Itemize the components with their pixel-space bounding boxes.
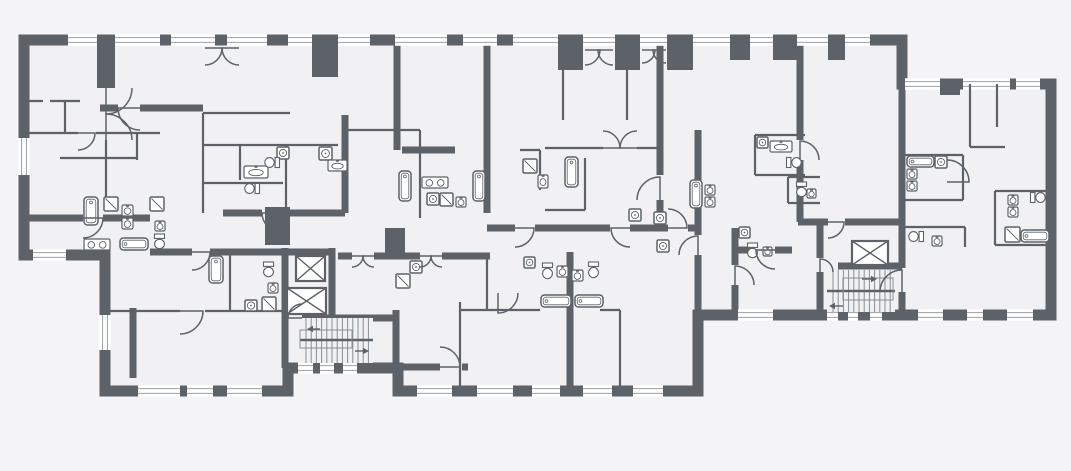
pier <box>828 45 845 60</box>
shower-icon <box>150 197 164 211</box>
tub-icon <box>575 295 603 307</box>
window <box>583 34 615 46</box>
sinkR-icon <box>155 221 165 231</box>
window <box>1007 309 1033 321</box>
elevator-shaft <box>296 256 325 281</box>
washer-icon <box>245 300 257 311</box>
sinkR-icon <box>1008 195 1018 205</box>
window <box>797 34 828 46</box>
shower-icon <box>440 193 453 206</box>
sink1-icon <box>244 166 268 178</box>
pier <box>667 45 693 70</box>
sinkR-icon <box>122 218 133 229</box>
window <box>583 385 612 397</box>
sink1-icon <box>538 175 548 188</box>
window <box>343 362 357 374</box>
window <box>513 34 558 46</box>
sink1-icon <box>328 160 347 171</box>
window <box>918 309 943 321</box>
staircase <box>300 318 373 363</box>
sinkR-icon <box>1008 207 1018 217</box>
window <box>750 34 773 46</box>
window <box>967 309 983 321</box>
tub-icon <box>541 295 571 307</box>
window <box>18 138 30 175</box>
sink1-icon <box>770 141 792 152</box>
toilet-icon <box>909 232 924 242</box>
window <box>463 34 497 46</box>
window <box>532 385 560 397</box>
pier <box>97 45 115 88</box>
sinkR-icon <box>268 283 278 293</box>
window <box>68 34 97 46</box>
shower-icon <box>396 274 410 288</box>
pier <box>773 45 797 60</box>
toilet-icon <box>543 263 553 279</box>
window <box>417 385 452 397</box>
building-footprint <box>24 40 1051 391</box>
toilet-icon <box>589 262 599 278</box>
window <box>288 34 312 46</box>
window <box>338 34 370 46</box>
tub-icon <box>473 171 485 201</box>
toilet-icon <box>787 158 802 168</box>
staircase <box>827 270 895 312</box>
window <box>320 362 334 374</box>
toilet-icon <box>1031 193 1046 203</box>
shower-icon <box>104 197 118 211</box>
window <box>298 362 313 374</box>
tub-icon <box>1021 230 1049 242</box>
window <box>395 34 447 46</box>
washer-icon <box>629 209 641 221</box>
tub-icon <box>120 238 148 250</box>
sinkR-icon <box>932 236 942 246</box>
sinkR-icon <box>705 197 715 207</box>
washer-icon <box>319 147 332 160</box>
pier <box>730 45 750 60</box>
washer-icon <box>757 137 768 148</box>
window <box>1016 78 1040 90</box>
pier <box>558 45 583 70</box>
sinkR-icon <box>907 181 917 191</box>
toilet-icon <box>245 184 260 194</box>
vanity2-icon <box>422 177 448 188</box>
window <box>905 78 940 90</box>
shower-icon <box>523 159 537 173</box>
window <box>640 34 667 46</box>
sinkR-icon <box>557 266 568 277</box>
shower-icon <box>1005 227 1020 242</box>
tub-icon <box>565 157 578 187</box>
toilet-icon <box>155 234 165 249</box>
sinkR-icon <box>122 205 133 216</box>
pier <box>385 228 405 256</box>
toilet-icon <box>264 262 274 277</box>
outer-wall <box>24 40 1051 391</box>
window <box>227 34 267 46</box>
tub-icon <box>399 171 411 201</box>
sinkR-icon <box>807 189 816 198</box>
washer-icon <box>524 257 535 268</box>
elevator-shaft <box>852 241 888 265</box>
window <box>99 315 111 350</box>
window <box>633 385 663 397</box>
window <box>227 385 262 397</box>
sinkR-icon <box>907 169 917 179</box>
window <box>171 34 215 46</box>
tub-icon <box>209 256 223 283</box>
tub-icon <box>907 156 934 167</box>
pier <box>940 84 960 95</box>
sinkR-icon <box>705 185 715 195</box>
window <box>115 34 160 46</box>
washer-icon <box>654 212 666 224</box>
window <box>845 34 870 46</box>
washer-icon <box>935 156 947 168</box>
vanity2-icon <box>84 239 110 250</box>
washer-icon <box>739 227 750 238</box>
window <box>138 385 180 397</box>
washer-icon <box>427 193 439 205</box>
window <box>738 309 773 321</box>
sinkR-icon <box>763 247 772 256</box>
toilet-icon <box>797 182 807 197</box>
tub-icon <box>84 197 98 225</box>
elevator-shaft <box>287 288 326 314</box>
window <box>477 385 513 397</box>
washer-icon <box>657 240 669 252</box>
floor-plan <box>0 0 1071 471</box>
sinkR-icon <box>456 197 466 207</box>
window <box>187 385 213 397</box>
tub-icon <box>690 180 702 208</box>
sinkR-icon <box>572 270 583 281</box>
window <box>693 34 730 46</box>
pier <box>312 45 338 77</box>
floor-plan-canvas <box>0 0 1071 471</box>
toilet-icon <box>265 158 280 168</box>
window <box>33 249 66 261</box>
shower-icon <box>262 297 276 311</box>
